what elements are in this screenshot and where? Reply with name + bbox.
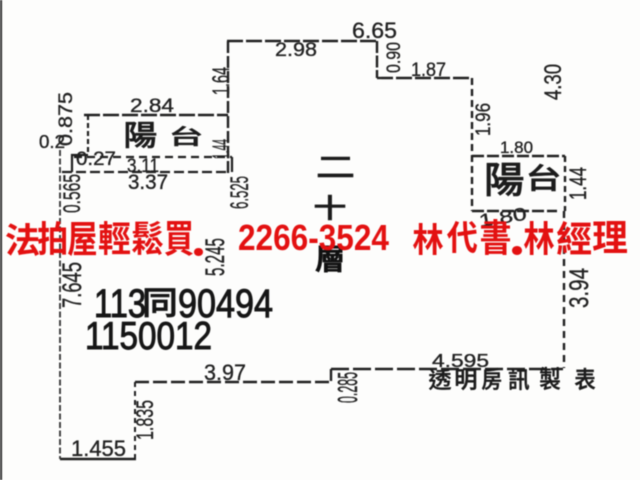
svg-text:1.87: 1.87	[411, 59, 446, 81]
svg-text:0.27: 0.27	[76, 148, 116, 170]
svg-text:1.80: 1.80	[500, 138, 533, 157]
svg-text:0.565: 0.565	[60, 174, 86, 213]
svg-text:5.245: 5.245	[200, 238, 230, 276]
svg-text:3.94: 3.94	[564, 268, 594, 308]
svg-text:7.645: 7.645	[57, 262, 87, 308]
svg-text:0.285: 0.285	[332, 372, 363, 403]
svg-text:1.835: 1.835	[133, 400, 159, 440]
svg-text:1.96: 1.96	[472, 103, 495, 136]
svg-text:6.525: 6.525	[226, 176, 254, 209]
svg-text:4.595: 4.595	[432, 351, 489, 371]
svg-text:2.84: 2.84	[130, 95, 174, 117]
svg-text:0.90: 0.90	[383, 42, 405, 73]
svg-text:2266-3524: 2266-3524	[238, 217, 389, 258]
svg-text:3.37: 3.37	[128, 171, 168, 194]
svg-text:1.44: 1.44	[566, 167, 592, 200]
svg-text:1.44: 1.44	[209, 139, 235, 159]
svg-text:2.98: 2.98	[275, 39, 317, 61]
svg-text:6.65: 6.65	[352, 18, 397, 43]
svg-text:3.97: 3.97	[204, 360, 246, 385]
svg-text:1.64: 1.64	[209, 67, 235, 95]
svg-text:1150012: 1150012	[85, 315, 212, 358]
svg-text:0.875: 0.875	[55, 92, 77, 146]
svg-text:4.30: 4.30	[541, 64, 567, 100]
svg-text:1.455: 1.455	[71, 436, 126, 461]
